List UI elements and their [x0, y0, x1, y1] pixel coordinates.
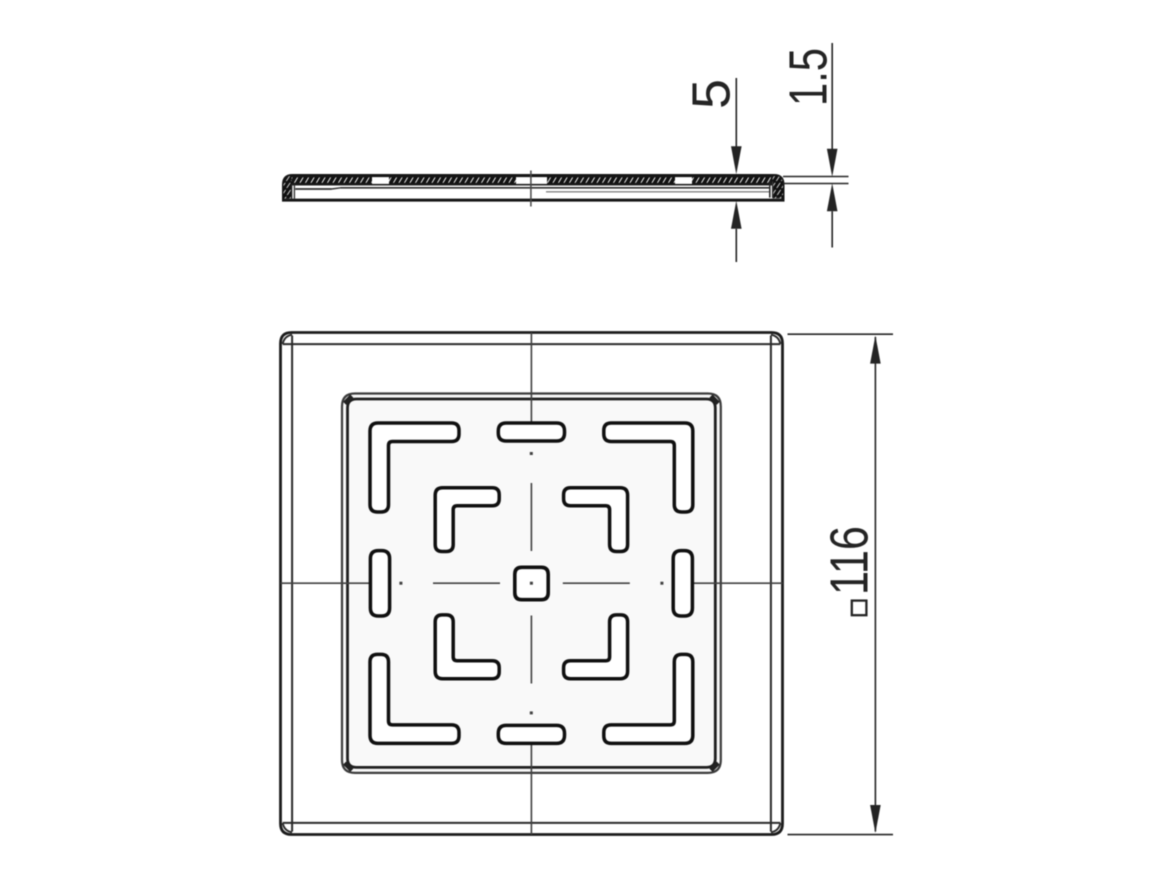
- svg-text:116: 116: [820, 526, 880, 595]
- svg-text:1.5: 1.5: [779, 48, 839, 106]
- svg-text:5: 5: [682, 79, 742, 109]
